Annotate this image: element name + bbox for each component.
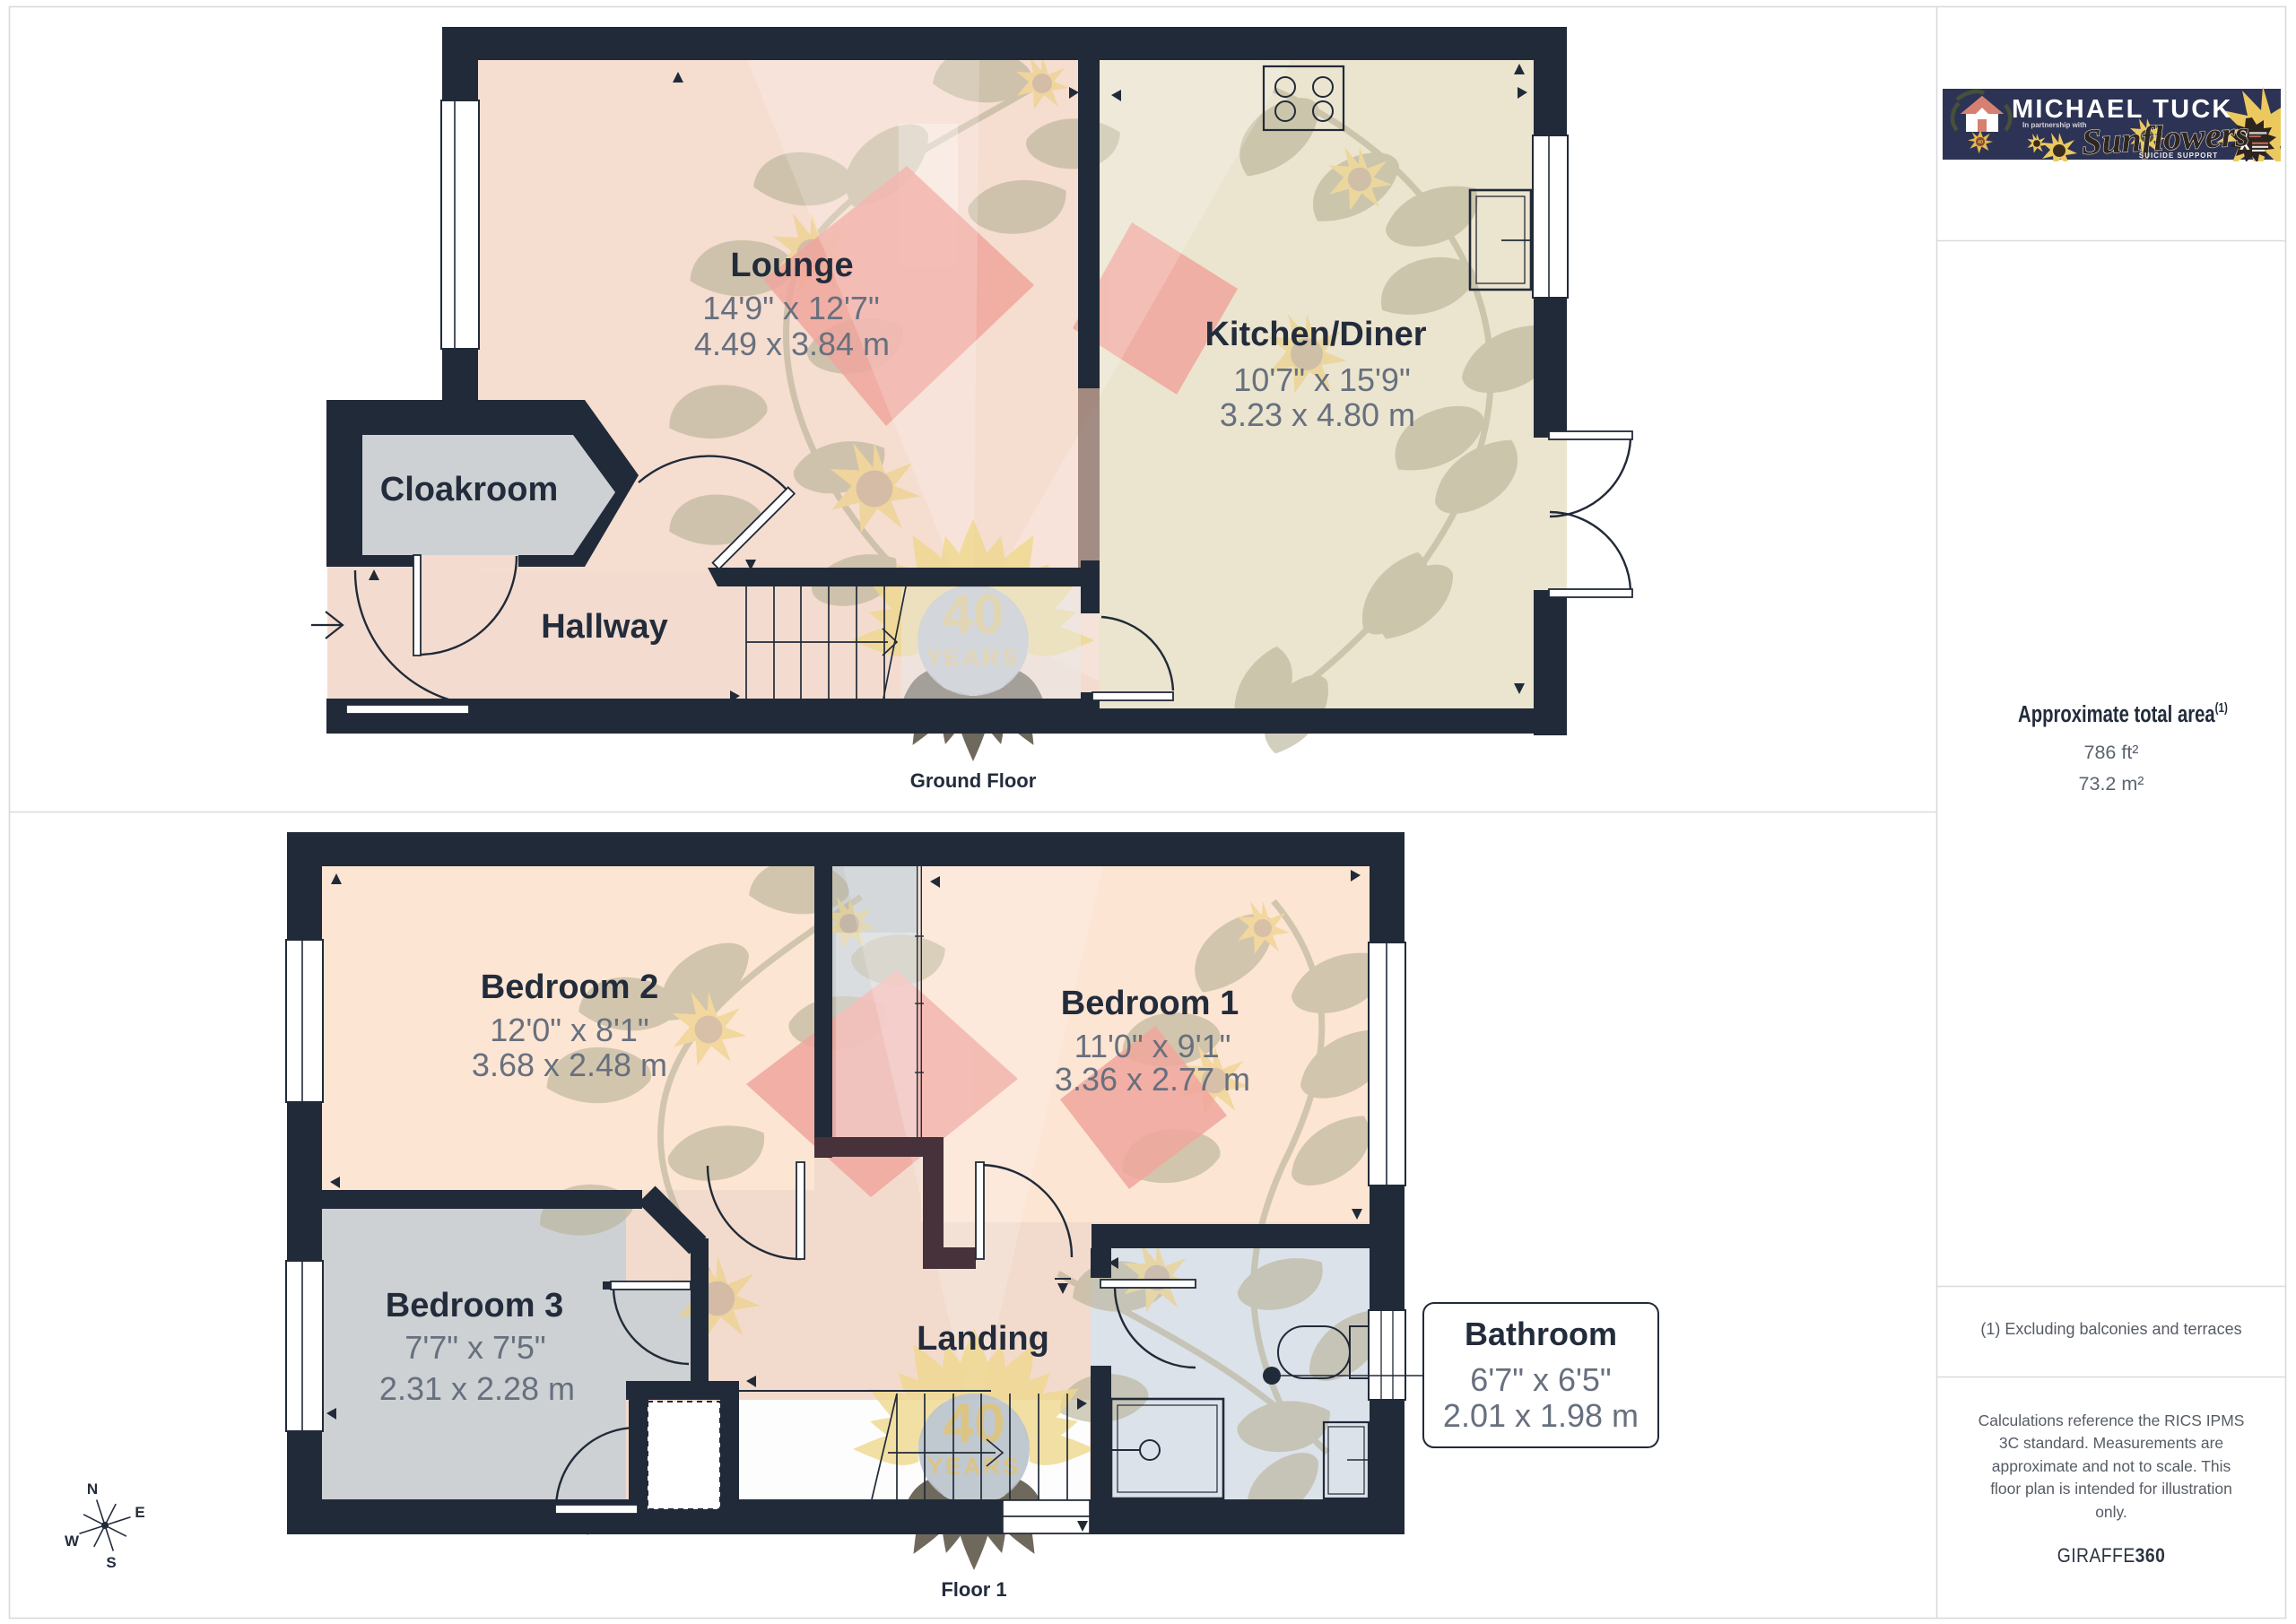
svg-text:SUICIDE SUPPORT: SUICIDE SUPPORT [2139, 152, 2218, 160]
svg-text:4.49 x 3.84 m: 4.49 x 3.84 m [694, 326, 890, 362]
svg-text:W: W [65, 1533, 80, 1550]
svg-text:E: E [135, 1504, 144, 1521]
svg-text:3C standard. Measurements are: 3C standard. Measurements are [1999, 1434, 2223, 1452]
svg-text:Kitchen/Diner: Kitchen/Diner [1205, 316, 1426, 353]
svg-text:Cloakroom: Cloakroom [380, 471, 558, 508]
svg-text:14'9" x 12'7": 14'9" x 12'7" [702, 290, 879, 326]
svg-text:73.2 m²: 73.2 m² [2079, 773, 2144, 795]
svg-text:(1) Excluding balconies and te: (1) Excluding balconies and terraces [1980, 1320, 2241, 1338]
svg-text:40: 40 [944, 1393, 1005, 1455]
svg-text:40: 40 [1978, 140, 1983, 145]
svg-text:7'7" x 7'5": 7'7" x 7'5" [404, 1329, 545, 1366]
svg-text:3.68 x 2.48 m: 3.68 x 2.48 m [472, 1046, 667, 1083]
svg-text:786 ft²: 786 ft² [2084, 742, 2139, 763]
svg-text:N: N [87, 1481, 98, 1498]
svg-text:Bedroom 1: Bedroom 1 [1061, 985, 1239, 1022]
svg-text:Bathroom: Bathroom [1465, 1316, 1617, 1352]
svg-text:10'7" x 15'9": 10'7" x 15'9" [1233, 361, 1410, 398]
svg-text:6'7" x 6'5": 6'7" x 6'5" [1470, 1361, 1611, 1398]
svg-text:In partnership with: In partnership with [2022, 121, 2087, 129]
svg-text:Bedroom 2: Bedroom 2 [481, 968, 658, 1006]
svg-text:approximate and not to scale.: approximate and not to scale. This [1992, 1457, 2231, 1475]
svg-text:12'0" x 8'1": 12'0" x 8'1" [490, 1012, 648, 1048]
svg-text:Lounge: Lounge [730, 247, 853, 284]
svg-text:2.31 x 2.28 m: 2.31 x 2.28 m [379, 1370, 575, 1407]
svg-text:11'0" x 9'1": 11'0" x 9'1" [1074, 1028, 1231, 1064]
svg-text:2.01 x 1.98 m: 2.01 x 1.98 m [1443, 1397, 1639, 1434]
svg-text:S: S [106, 1554, 116, 1571]
svg-text:Approximate total area(1): Approximate total area(1) [2018, 700, 2228, 727]
svg-text:Landing: Landing [917, 1320, 1049, 1358]
svg-text:YEARS: YEARS [927, 1453, 1022, 1480]
svg-text:Bedroom 3: Bedroom 3 [386, 1287, 563, 1324]
svg-text:only.: only. [2095, 1503, 2127, 1521]
svg-text:Hallway: Hallway [541, 608, 668, 646]
svg-text:floor plan is intended for ill: floor plan is intended for illustration [1990, 1480, 2232, 1498]
svg-text:Floor 1: Floor 1 [941, 1578, 1006, 1601]
svg-text:GIRAFFE360: GIRAFFE360 [2057, 1545, 2166, 1567]
svg-text:3.36 x 2.77 m: 3.36 x 2.77 m [1055, 1061, 1250, 1098]
svg-text:Calculations reference the RIC: Calculations reference the RICS IPMS [1979, 1411, 2245, 1429]
svg-text:3.23 x 4.80 m: 3.23 x 4.80 m [1220, 396, 1415, 433]
svg-text:Ground Floor: Ground Floor [910, 769, 1037, 792]
